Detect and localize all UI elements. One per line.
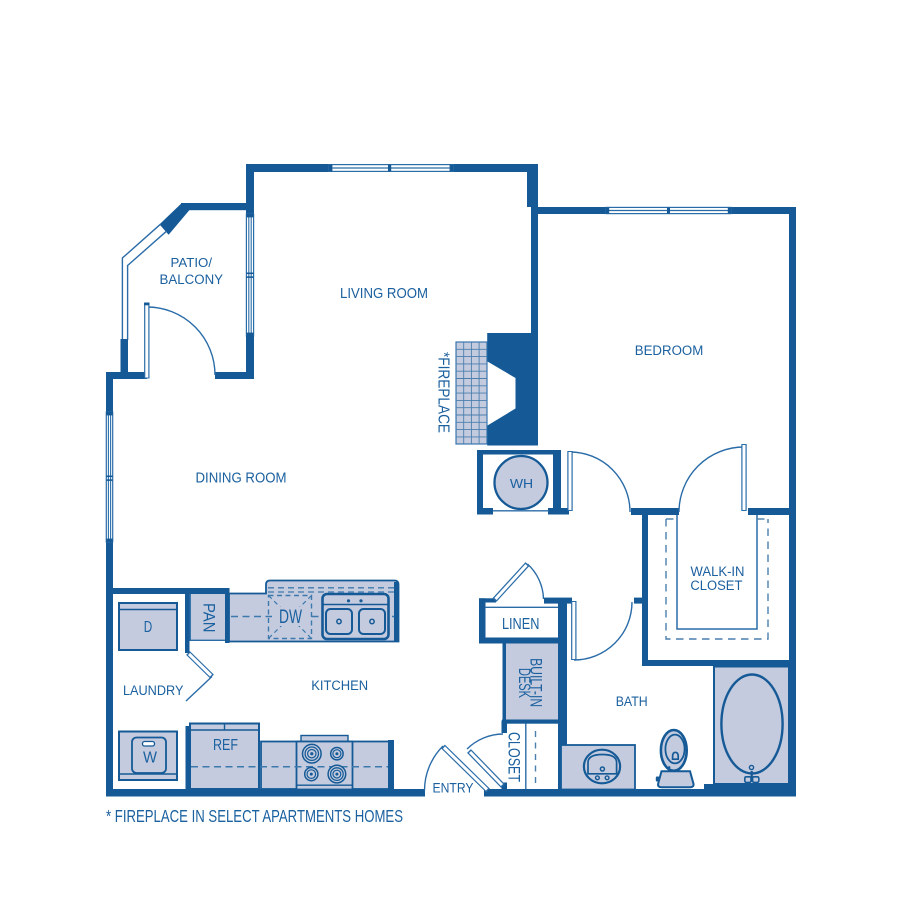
svg-text:PAN: PAN (199, 603, 217, 633)
svg-text:BEDROOM: BEDROOM (635, 343, 704, 359)
svg-text:WH: WH (510, 476, 533, 491)
svg-text:PATIO/: PATIO/ (171, 256, 213, 270)
svg-text:W: W (143, 749, 157, 766)
svg-text:D: D (144, 619, 153, 636)
svg-text:ENTRY: ENTRY (433, 781, 474, 797)
svg-text:LINEN: LINEN (502, 616, 540, 633)
svg-text:BALCONY: BALCONY (160, 272, 224, 288)
svg-text:LIVING ROOM: LIVING ROOM (340, 286, 428, 302)
svg-text:CLOSET: CLOSET (505, 732, 524, 782)
svg-text:DW: DW (279, 607, 302, 628)
svg-text:BATH: BATH (616, 693, 648, 709)
svg-text:LAUNDRY: LAUNDRY (123, 683, 184, 698)
svg-text:REF: REF (213, 737, 238, 754)
svg-text:*FIREPLACE: *FIREPLACE (434, 352, 451, 433)
svg-text:KITCHEN: KITCHEN (311, 678, 368, 693)
svg-text:DESK: DESK (515, 668, 533, 698)
svg-text:* FIREPLACE IN SELECT APARTMEN: * FIREPLACE IN SELECT APARTMENTS HOMES (106, 806, 403, 826)
svg-text:DINING ROOM: DINING ROOM (196, 470, 287, 487)
svg-text:CLOSET: CLOSET (690, 578, 742, 594)
